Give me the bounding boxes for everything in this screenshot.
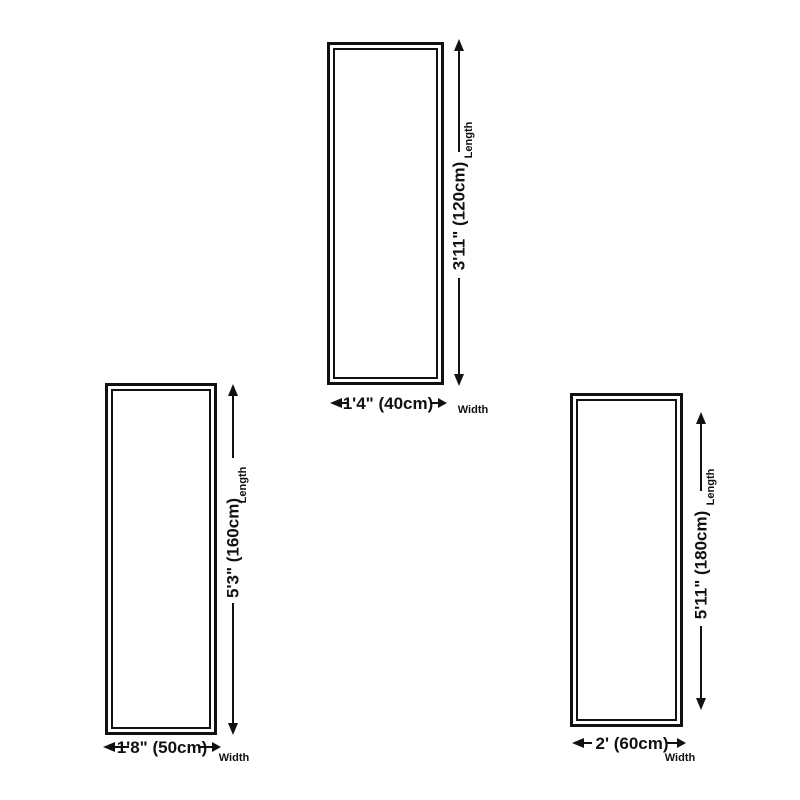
size-box-outline-180 (570, 393, 683, 727)
length-annotation-120: Length 3'11" (120cm) (441, 36, 481, 392)
length-annotation-160: Length 5'3" (160cm) (215, 381, 259, 739)
width-caption: Width (665, 752, 696, 764)
length-caption: Length (237, 466, 249, 503)
width-caption: Width (219, 752, 250, 764)
length-caption: Length (463, 121, 475, 158)
length-value: 5'3" (160cm) (224, 498, 243, 598)
size-box-outline-120 (327, 42, 444, 385)
length-value: 3'11" (120cm) (450, 162, 469, 271)
arrow-right-icon (212, 742, 221, 752)
size-chart-canvas: Length 3'11" (120cm) 1'4" (40cm) Width L… (0, 0, 800, 800)
size-box-outline-160 (105, 383, 217, 735)
arrow-down-icon (454, 374, 464, 386)
arrow-left-icon (330, 398, 342, 408)
arrow-up-icon (228, 384, 238, 396)
width-annotation-180: 2' (60cm) Width (566, 733, 718, 769)
width-annotation-160: 1'8" (50cm) Width (98, 737, 250, 769)
size-box-inner-outline (111, 389, 211, 729)
arrow-down-icon (228, 723, 238, 735)
width-caption: Width (458, 404, 489, 416)
arrow-left-icon (572, 738, 584, 748)
length-value: 5'11" (180cm) (692, 511, 711, 620)
width-value: 1'8" (50cm) (117, 738, 208, 757)
arrow-right-icon (438, 398, 447, 408)
width-value: 1'4" (40cm) (343, 394, 434, 413)
arrow-up-icon (454, 39, 464, 51)
length-caption: Length (705, 468, 717, 505)
width-value: 2' (60cm) (595, 734, 668, 753)
size-box-inner-outline (576, 399, 677, 721)
arrow-down-icon (696, 698, 706, 710)
arrow-up-icon (696, 412, 706, 424)
arrow-left-icon (103, 742, 115, 752)
width-annotation-120: 1'4" (40cm) Width (326, 392, 498, 428)
length-annotation-180: Length 5'11" (180cm) (683, 409, 727, 713)
arrow-right-icon (677, 738, 686, 748)
size-box-inner-outline (333, 48, 438, 379)
